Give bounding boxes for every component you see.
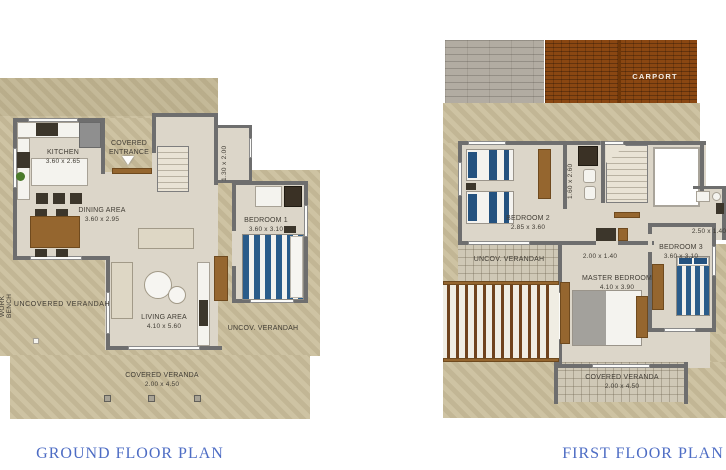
pergola-slat [447, 285, 450, 358]
sofa [111, 262, 133, 319]
oven [17, 152, 30, 168]
bench [614, 212, 640, 218]
room-dims: 2.00 x 4.50 [584, 383, 660, 391]
window [106, 292, 110, 334]
veranda-post [104, 395, 111, 402]
kitchen-label: KITCHEN 3.60 x 2.65 [33, 149, 93, 166]
stool [36, 193, 48, 204]
bed-pillow [468, 194, 477, 221]
floor-plans-canvas: KITCHEN 3.60 x 2.65 COVERED ENTRANCE DIN… [0, 0, 726, 470]
wardrobe [538, 149, 551, 199]
pergola-slat [501, 285, 504, 358]
pergola-slat [483, 285, 486, 358]
sink [584, 186, 596, 200]
pergola-slat [456, 285, 459, 358]
entrance-step [112, 168, 152, 174]
pergola-slat [528, 285, 531, 358]
veranda-post [194, 395, 201, 402]
room-name: BEDROOM 2 [496, 215, 560, 224]
covered-veranda-label: COVERED VERANDA 2.00 x 4.50 [584, 374, 660, 391]
stool [70, 193, 82, 204]
room-name: BEDROOM 1 [235, 217, 297, 226]
bath2-dims-label: 2.50 x 1.40 [684, 228, 726, 236]
wall [648, 223, 716, 227]
cabinet [214, 256, 228, 301]
covered-entrance-label: COVERED ENTRANCE [100, 140, 158, 158]
stove [36, 123, 58, 136]
dresser [560, 282, 570, 344]
stair-landing [606, 145, 626, 163]
stool [53, 193, 65, 204]
fridge [79, 122, 101, 148]
closet-dims-label: 2.00 x 1.40 [572, 253, 628, 261]
void-opening [653, 147, 700, 207]
covered-veranda-label: COVERED VERANDA 2.00 x 4.50 [120, 372, 204, 389]
room-dims: 4.10 x 3.90 [578, 284, 656, 292]
uncov-verandah-label: UNCOV. VERANDAH [224, 325, 302, 334]
dining-chair [35, 249, 47, 257]
uncovered-verandah-label: UNCOVERED VERANDAH [12, 301, 112, 310]
pergola-slat [546, 285, 549, 358]
door-opening [596, 241, 618, 245]
wall [684, 362, 688, 404]
room-name: BEDROOM 3 [650, 244, 712, 253]
wall [712, 223, 716, 332]
veranda-post [148, 395, 155, 402]
toilet [583, 169, 596, 183]
window [128, 346, 200, 350]
veranda-post [33, 338, 39, 344]
pergola-rail [443, 358, 559, 362]
room-name: KITCHEN [33, 149, 93, 158]
bed-stripe [504, 150, 509, 180]
sofa [138, 228, 194, 249]
wall [232, 181, 308, 185]
window [458, 162, 462, 196]
room-name: MASTER BEDROOM [578, 275, 656, 284]
bed-pillow [468, 152, 477, 178]
wall [218, 125, 252, 128]
room-dims: 4.10 x 5.60 [132, 323, 196, 331]
nightstand [466, 183, 476, 190]
wall [700, 141, 704, 191]
wall [232, 266, 236, 303]
pergola-slat [492, 285, 495, 358]
window [304, 205, 308, 237]
ground-floor-plan-title: GROUND FLOOR PLAN [30, 445, 230, 463]
window [249, 138, 252, 158]
room-dims: 3.60 x 2.65 [33, 158, 93, 166]
shower [578, 146, 598, 166]
room-name: LIVING AREA [132, 314, 196, 323]
wall [152, 113, 218, 117]
wardrobe [255, 186, 282, 207]
window [592, 364, 650, 368]
bed-pillows [290, 236, 303, 298]
room-dims: 3.60 x 3.10 [235, 226, 297, 234]
side-table [168, 286, 186, 304]
room-dims: 3.60 x 2.95 [71, 216, 133, 224]
pergola-slat [474, 285, 477, 358]
closet-cabinet [596, 228, 616, 241]
living-label: LIVING AREA 4.10 x 5.60 [132, 314, 196, 331]
work-bench-label: WORK BENCH [0, 283, 9, 329]
pergola-slat [537, 285, 540, 358]
bath1-dims-label: 1.60 x 2.60 [567, 158, 577, 204]
room-dims: 2.00 x 4.50 [120, 381, 204, 389]
bedroom1-label: BEDROOM 1 3.60 x 3.10 [235, 217, 297, 234]
bed-stripe [489, 150, 497, 180]
bedroom3-label: BEDROOM 3 3.60 x 3.10 [650, 244, 712, 261]
dining-chair [56, 249, 68, 257]
wall [304, 181, 308, 303]
shower [284, 186, 302, 207]
staircase [157, 146, 189, 192]
pergola-slat [519, 285, 522, 358]
window [712, 246, 716, 276]
wardrobe [636, 296, 648, 338]
room-name: DINING AREA [71, 207, 133, 216]
roof-overhang [0, 78, 218, 116]
roof-gray [445, 40, 544, 104]
terrain [443, 103, 700, 145]
toilet [712, 192, 721, 201]
kitchen-counter [17, 138, 30, 200]
terrain [716, 244, 726, 334]
dining-label: DINING AREA 3.60 x 2.95 [71, 207, 133, 224]
pergola-slat [510, 285, 513, 358]
first-floor-plan-title: FIRST FLOOR PLAN [558, 445, 726, 463]
room-dims: 2.85 x 3.60 [496, 224, 560, 232]
tv [199, 300, 208, 326]
plant [16, 172, 25, 181]
shower [716, 203, 724, 214]
wall [214, 113, 218, 185]
sink [696, 191, 710, 202]
wall [601, 141, 605, 203]
room-name: COVERED VERANDA [584, 374, 660, 383]
wall [554, 362, 558, 404]
room-name: COVERED VERANDA [120, 372, 204, 381]
bedroom2-label: BEDROOM 2 2.85 x 3.60 [496, 215, 560, 232]
wardrobe [618, 228, 628, 241]
master-bedroom-label: MASTER BEDROOM 4.10 x 3.90 [578, 275, 656, 292]
carport-label: CARPORT [620, 72, 690, 81]
uncov-verandah-label: UNCOV. VERANDAH [470, 256, 548, 265]
pergola-slat [465, 285, 468, 358]
room-dims: 3.60 x 3.10 [650, 253, 712, 261]
bed-blanket [573, 291, 606, 345]
window [468, 241, 530, 245]
terrain [443, 143, 459, 283]
bath-dims-label: 1.30 x 2.00 [221, 142, 231, 184]
window [664, 328, 696, 332]
window [468, 141, 506, 145]
